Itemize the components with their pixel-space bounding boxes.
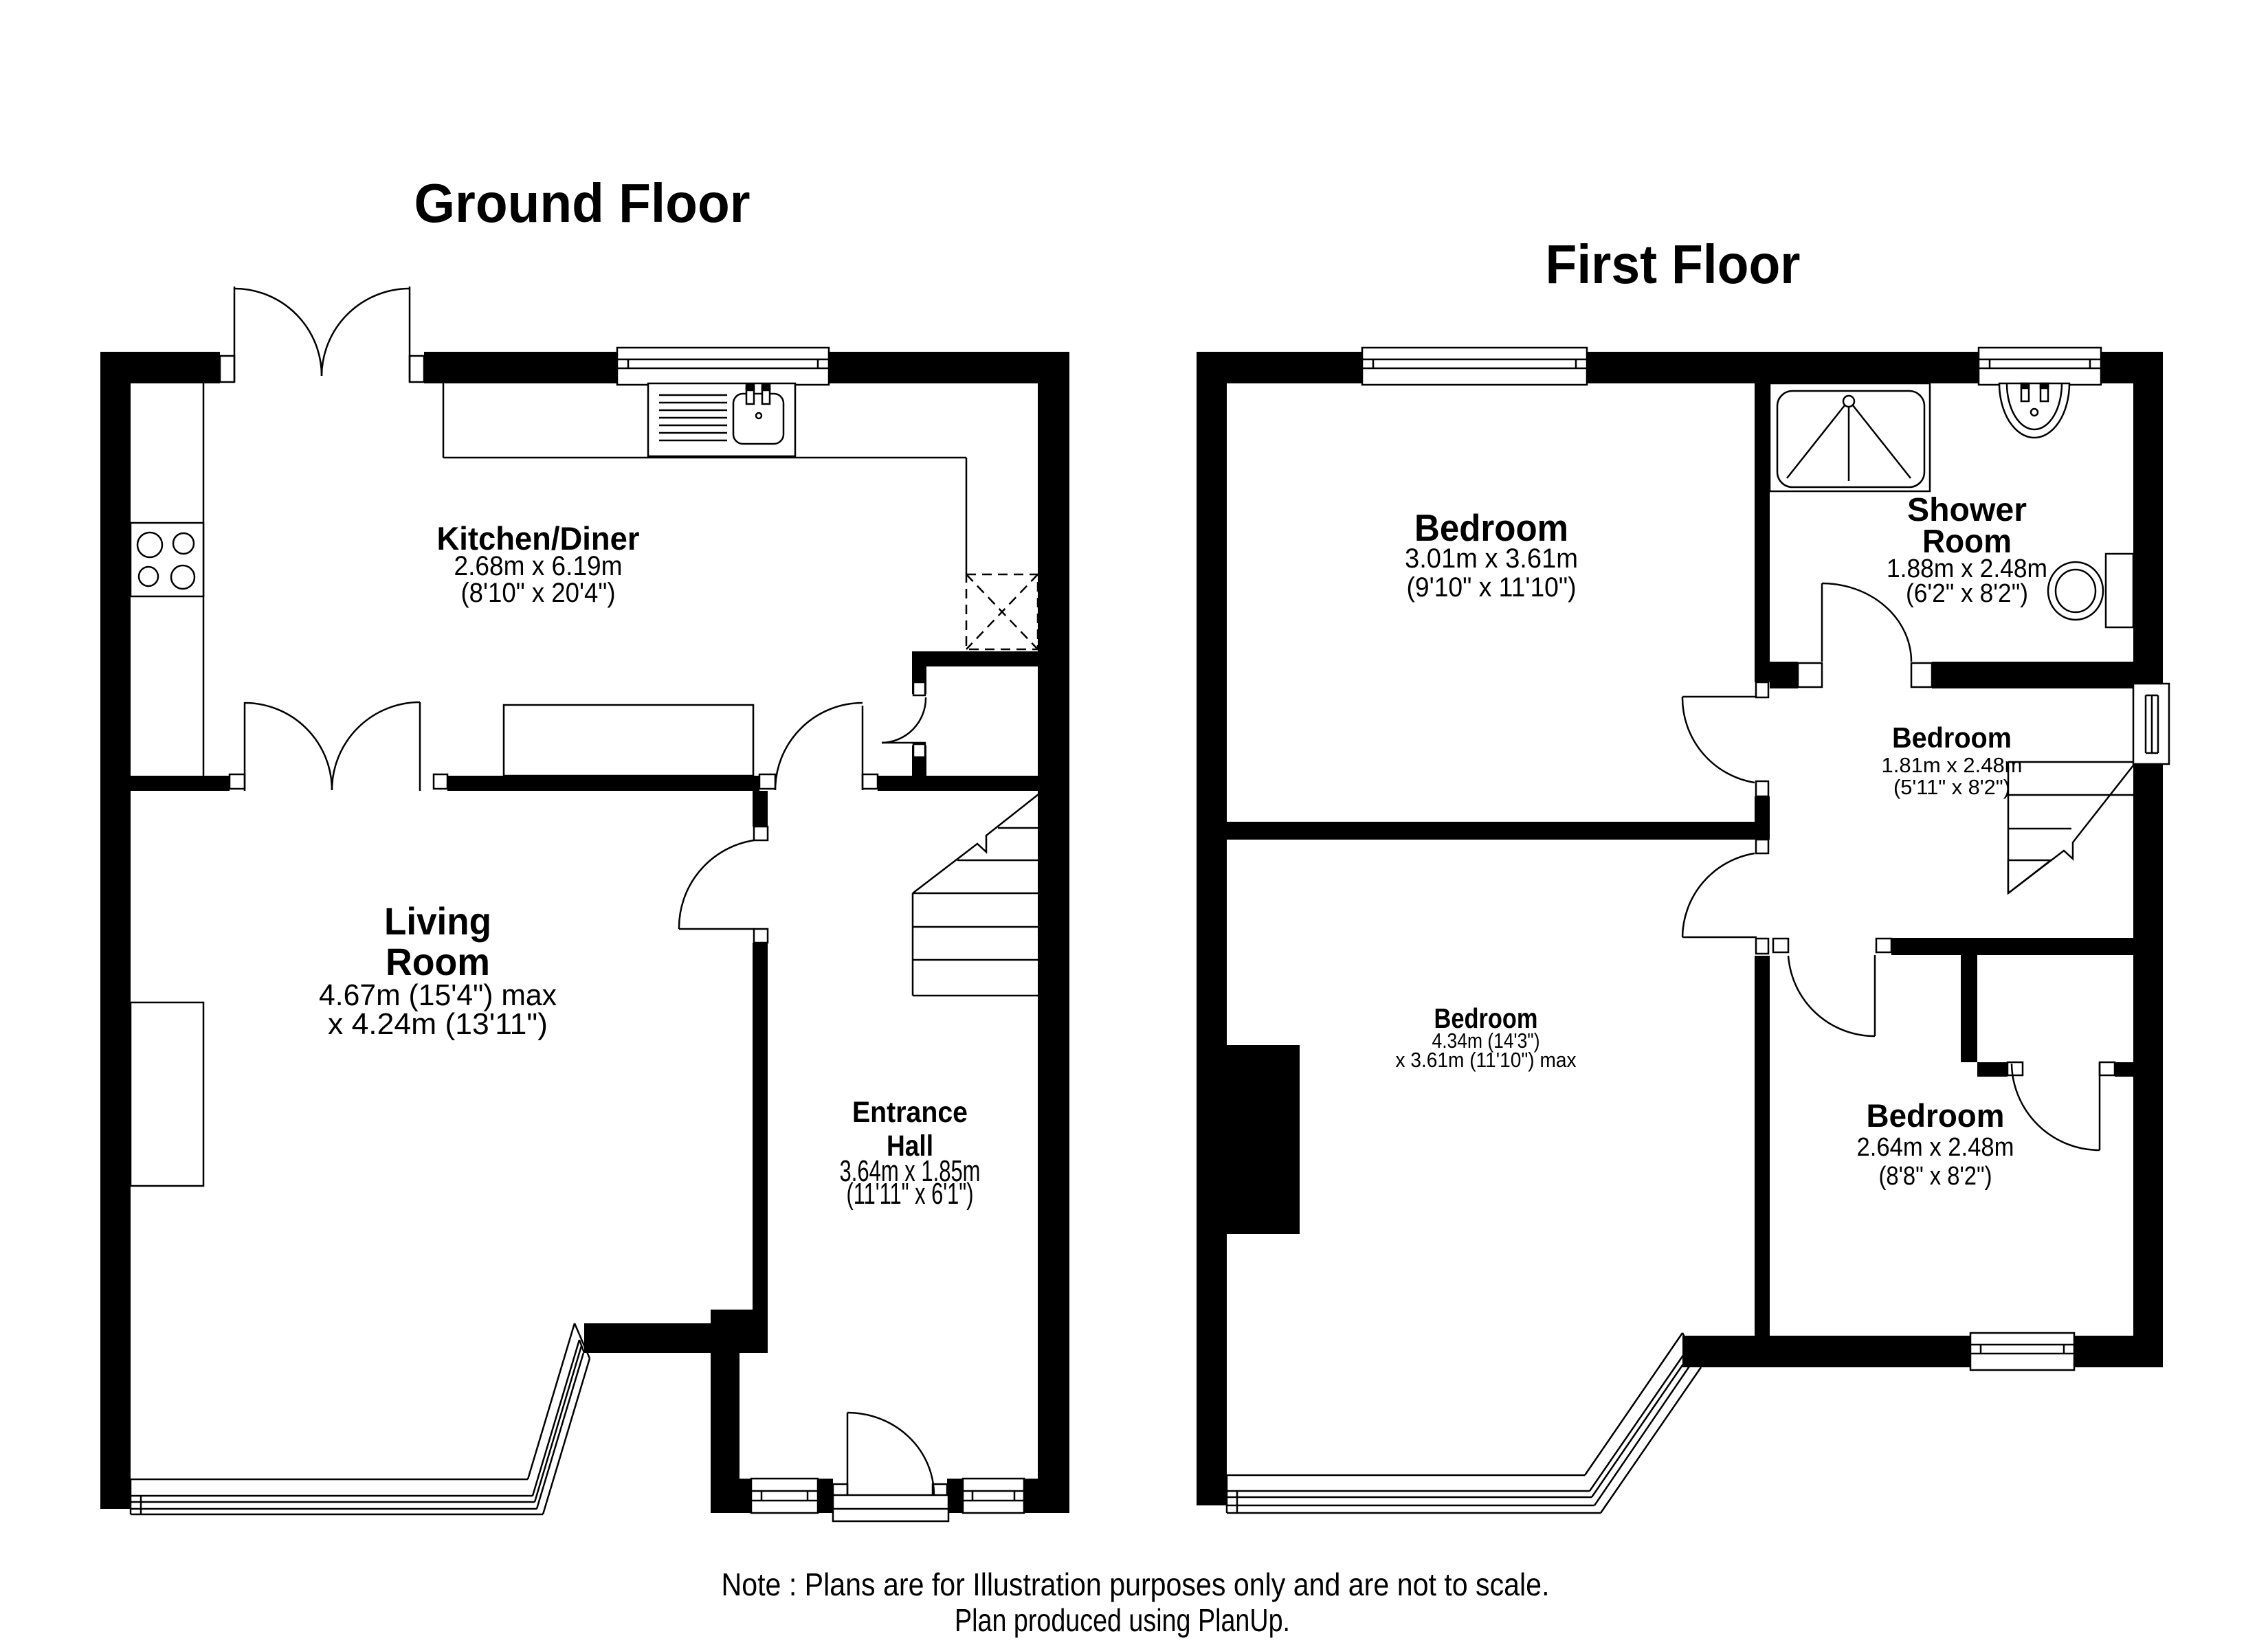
svg-text:Living: Living (384, 899, 491, 943)
svg-text:(5'11" x 8'2"): (5'11" x 8'2") (1893, 775, 2010, 799)
svg-text:2.64m x 2.48m: 2.64m x 2.48m (1857, 1133, 2014, 1162)
svg-text:x 3.61m (11'10") max: x 3.61m (11'10") max (1396, 1048, 1577, 1072)
svg-text:Ground Floor: Ground Floor (414, 172, 751, 234)
svg-text:Bedroom: Bedroom (1414, 506, 1568, 549)
svg-text:(11'11" x 6'1"): (11'11" x 6'1") (847, 1177, 974, 1211)
svg-text:1.81m x 2.48m: 1.81m x 2.48m (1882, 753, 2023, 777)
svg-text:Note : Plans are for Illustrat: Note : Plans are for Illustration purpos… (722, 1567, 1550, 1602)
svg-text:2.68m x 6.19m: 2.68m x 6.19m (454, 551, 623, 581)
svg-text:Room: Room (386, 940, 490, 983)
svg-text:(9'10" x 11'10"): (9'10" x 11'10") (1407, 572, 1577, 603)
svg-text:3.01m x 3.61m: 3.01m x 3.61m (1405, 543, 1578, 574)
svg-text:Bedroom: Bedroom (1892, 721, 2012, 754)
svg-text:First Floor: First Floor (1546, 234, 1801, 295)
svg-text:(8'10" x 20'4"): (8'10" x 20'4") (461, 578, 616, 608)
svg-text:Plan produced using PlanUp.: Plan produced using PlanUp. (955, 1602, 1290, 1638)
svg-text:Bedroom: Bedroom (1867, 1097, 2005, 1134)
svg-text:Entrance: Entrance (852, 1096, 968, 1129)
svg-text:x 4.24m (13'11"): x 4.24m (13'11") (328, 1007, 548, 1041)
svg-text:(6'2" x 8'2"): (6'2" x 8'2") (1906, 579, 2028, 608)
svg-text:(8'8" x 8'2"): (8'8" x 8'2") (1879, 1162, 1992, 1191)
